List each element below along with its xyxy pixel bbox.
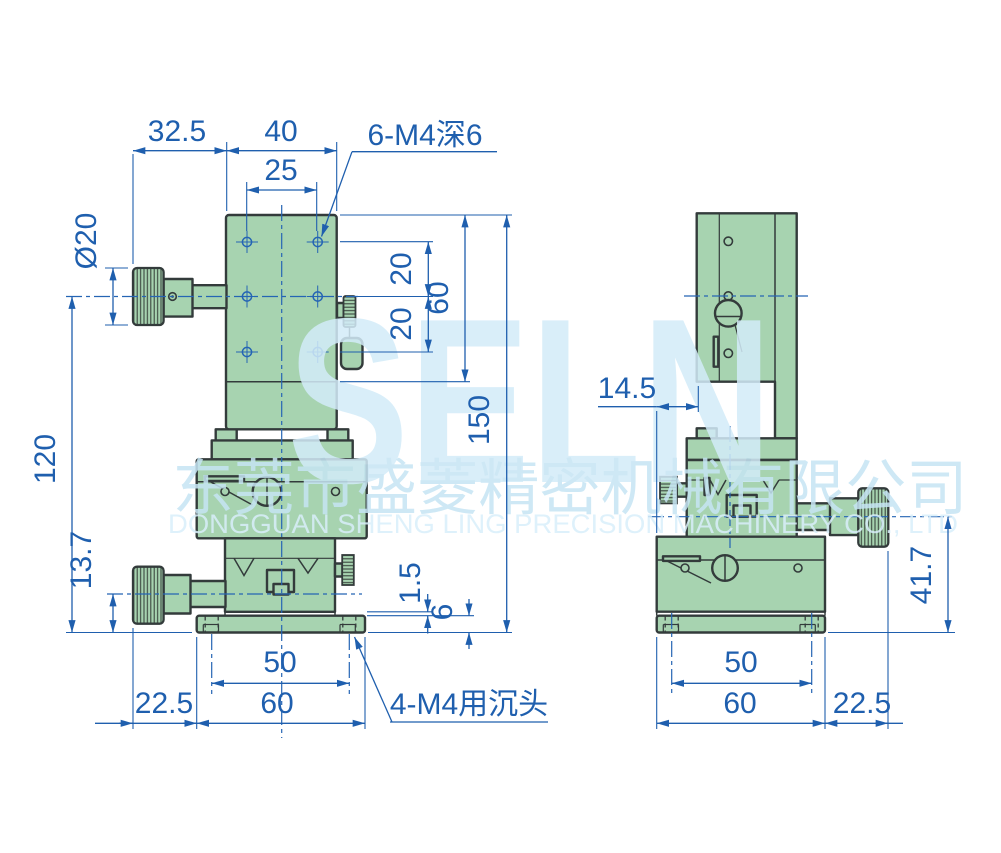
front-stage-clamp-knob xyxy=(342,555,354,585)
watermark: SELN 东莞市盛菱精密机械有限公司 DONGGUAN SHENG LING P… xyxy=(168,269,968,539)
dim-front-flange-thickness: 6 xyxy=(426,604,459,621)
dim-side-offset: 14.5 xyxy=(598,372,656,405)
dim-side-base-width: 60 xyxy=(723,687,756,720)
dim-front-hole-span: 50 xyxy=(263,646,296,679)
front-mid-tab-left xyxy=(216,429,237,441)
dim-side-hole-span: 50 xyxy=(724,646,757,679)
note-thread-top: 6-M4深6 xyxy=(367,119,482,152)
dim-front-knob-offset: 32.5 xyxy=(148,115,206,148)
dim-front-lip: 1.5 xyxy=(394,562,427,604)
dim-front-knob-dia: Ø20 xyxy=(70,213,103,270)
technical-drawing: SELN 东莞市盛菱精密机械有限公司 DONGGUAN SHENG LING P… xyxy=(0,0,1001,853)
dim-front-lower-axis-height: 13.7 xyxy=(65,531,98,589)
dim-front-pitch-b: 20 xyxy=(385,307,418,340)
side-base-block xyxy=(657,537,825,612)
dim-front-axis-height: 120 xyxy=(29,434,62,484)
dim-front-hole-dx: 25 xyxy=(264,154,297,187)
dim-front-overhang: 22.5 xyxy=(135,687,193,720)
note-countersink-bottom: 4-M4用沉头 xyxy=(390,688,548,721)
dim-front-plate-width: 40 xyxy=(264,115,297,148)
dim-side-axis-height: 41.7 xyxy=(905,546,938,604)
watermark-company-en: DONGGUAN SHENG LING PRECISION MACHINERY … xyxy=(168,509,958,539)
dim-side-overhang: 22.5 xyxy=(833,687,891,720)
front-top-knob-collar xyxy=(164,279,193,317)
dim-front-base-width: 60 xyxy=(260,687,293,720)
drawing-canvas: SELN 东莞市盛菱精密机械有限公司 DONGGUAN SHENG LING P… xyxy=(0,0,1001,853)
dim-front-plate-height: 60 xyxy=(422,281,455,314)
front-lower-knob-cap xyxy=(133,567,164,624)
dim-front-total-height: 150 xyxy=(463,395,496,445)
dim-front-pitch-a: 20 xyxy=(385,252,418,285)
